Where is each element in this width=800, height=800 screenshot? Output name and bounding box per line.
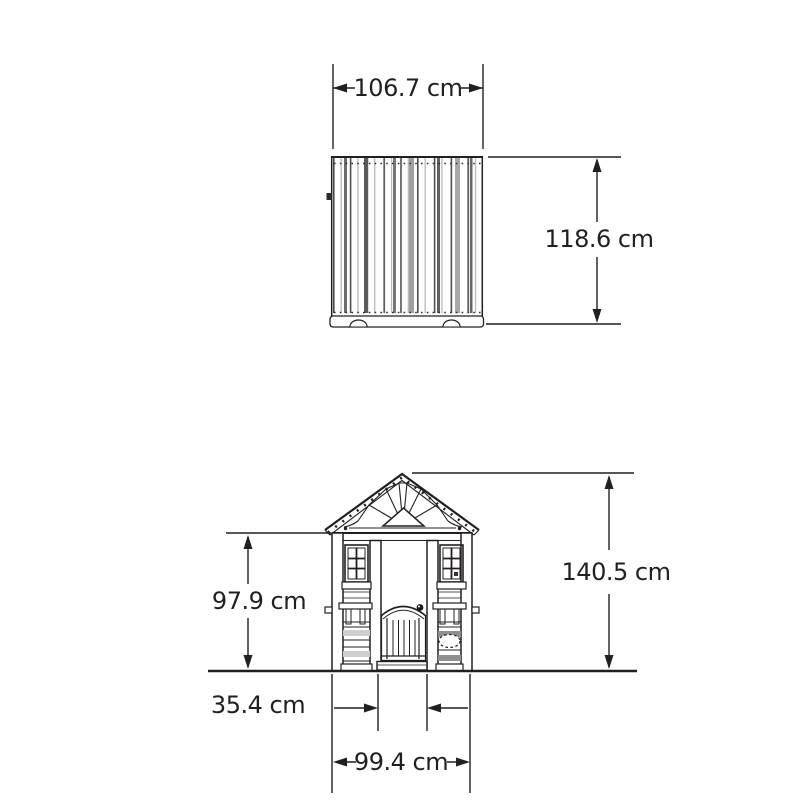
right-window-sill <box>437 582 466 589</box>
arrowhead-down <box>244 655 253 669</box>
arrowhead-down <box>605 655 614 669</box>
right-siding-shade-b <box>438 655 461 661</box>
right-panel-dashed-oval <box>439 635 460 648</box>
top-view-drawing <box>327 157 484 327</box>
arrowhead-right-pointing <box>364 704 378 713</box>
left-wall-tab <box>325 607 332 613</box>
right-siding-line-a <box>438 592 461 598</box>
door-threshold <box>377 662 427 671</box>
door-gate <box>377 604 427 670</box>
gate-knob-highlight <box>418 606 420 608</box>
arrowhead-left <box>333 758 347 767</box>
left-window-muntins <box>348 548 365 579</box>
dimension-label-side-panel-width: 35.4 cm <box>211 693 305 717</box>
left-window-sill <box>342 582 371 589</box>
arrowhead-left-pointing <box>427 704 441 713</box>
corner-post-left <box>332 533 343 671</box>
dimension-label-base-width: 99.4 cm <box>354 750 448 774</box>
arrowhead-right <box>456 758 470 767</box>
gate-arch-inner <box>383 610 424 619</box>
right-planter-rail <box>433 603 466 609</box>
arrowhead-up <box>605 475 614 489</box>
arrowhead-left <box>333 84 347 93</box>
gate-knob <box>417 604 424 611</box>
dimension-label-roof-width: 106.7 cm <box>354 76 463 100</box>
right-window-latch <box>454 572 458 576</box>
roof-left-tab <box>327 193 333 200</box>
arrowhead-up <box>244 535 253 549</box>
dimension-label-roof-depth: 118.6 cm <box>545 227 654 251</box>
left-siding-shade-b <box>343 651 370 657</box>
left-siding-line-a <box>343 592 370 598</box>
dimension-label-overall-height: 140.5 cm <box>562 560 671 584</box>
dimension-label-wall-height: 97.9 cm <box>212 589 306 613</box>
roof-fascia-line <box>330 481 474 536</box>
gable-screw-left <box>344 527 347 530</box>
arrowhead-up <box>593 158 602 172</box>
gate-slats <box>393 620 415 656</box>
diagram-linework <box>0 0 800 800</box>
arrowhead-right <box>469 84 483 93</box>
left-siding-shade-a <box>343 630 370 636</box>
arrowhead-down <box>593 309 602 323</box>
gable-screw-right <box>458 527 461 530</box>
right-wall-tab <box>472 607 479 613</box>
gable-sunburst <box>344 483 462 530</box>
left-planter-rail <box>339 603 372 609</box>
dimension-diagram: 106.7 cm 118.6 cm 97.9 cm 140.5 cm 35.4 … <box>0 0 800 800</box>
